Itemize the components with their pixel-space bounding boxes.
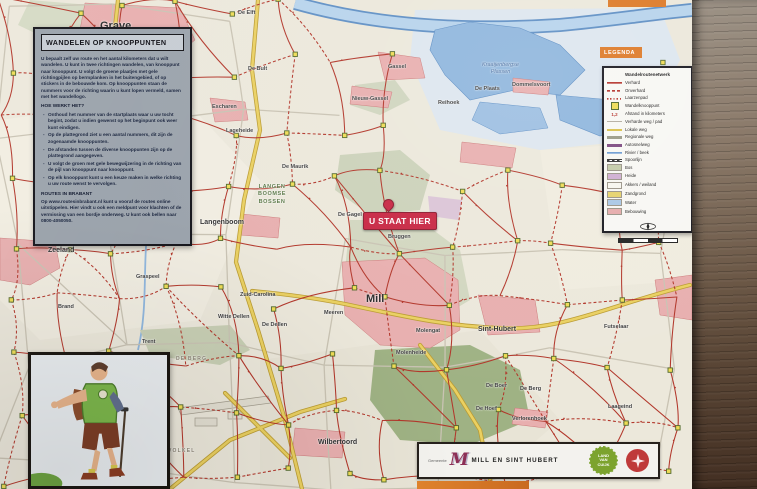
- legend-row: Autosnelweg: [607, 142, 688, 148]
- legend-row: Spoorlijn: [607, 158, 688, 163]
- legend-label: Water: [625, 201, 636, 206]
- map-board: GraveEscharenDe ElftDe BultGasselNieuw-G…: [0, 0, 692, 489]
- footer-logos-strip: Gemeente M MILL EN SINT HUBERT LAND VAN …: [417, 442, 660, 479]
- legend-row: Bebouwing: [607, 208, 688, 215]
- legend-label: Onverhard: [625, 89, 645, 94]
- board-top-tab: [608, 0, 666, 7]
- legend-row: Verhard: [607, 80, 688, 86]
- legend-row: Water: [607, 199, 688, 206]
- rosette-star-icon: [631, 454, 645, 468]
- info-how-title: HOE WERKT HET?: [41, 104, 184, 110]
- legend-label: Bebouwing: [625, 210, 646, 215]
- info-panel-title: WANDELEN OP KNOOPPUNTEN: [41, 34, 184, 51]
- info-how-item: Op de plattegrond ziet u een aantal numm…: [48, 132, 184, 145]
- rosette-logo: [626, 449, 649, 472]
- gemeente-name: MILL EN SINT HUBERT: [472, 457, 559, 464]
- info-routes-text: Op www.routesinbrabant.nl kunt u vooraf …: [41, 199, 184, 224]
- zand-swatch-icon: [607, 191, 622, 198]
- bos-swatch-icon: [607, 164, 622, 171]
- legend-panel: Wandelroutenetwerk VerhardOnverhardLaarz…: [602, 66, 693, 233]
- info-panel: WANDELEN OP KNOOPPUNTEN U bepaalt zelf u…: [33, 27, 192, 246]
- legend-row: Onverhard: [607, 88, 688, 94]
- legend-label: Zandgrond: [625, 192, 646, 197]
- legend-row: 1,2Afstand in kilometers: [607, 111, 688, 117]
- you-are-here-marker: U STAAT HIER: [363, 212, 437, 230]
- hiker-icon: [31, 355, 167, 486]
- info-intro: U bepaalt zelf uw route en het aantal ki…: [41, 56, 184, 100]
- legend-row: Laarzenpad: [607, 96, 688, 102]
- river-swatch-icon: [607, 150, 622, 156]
- gemeente-logo: Gemeente M MILL EN SINT HUBERT: [428, 454, 558, 468]
- info-how-item: De afstanden tussen de diverse knooppunt…: [48, 147, 184, 160]
- legend-label: Regionale weg: [625, 135, 653, 140]
- land-van-cuijk-badge: LAND VAN CUIJK: [590, 447, 617, 474]
- motorway-swatch-icon: [607, 142, 622, 148]
- legend-row: Zandgrond: [607, 191, 688, 198]
- legend-items: VerhardOnverhardLaarzenpadWandelknooppun…: [607, 80, 688, 215]
- legend-label: Bos: [625, 166, 632, 171]
- legend-row: Akkers / weiland: [607, 182, 688, 189]
- legend-row: Bos: [607, 164, 688, 171]
- legend-label: Autosnelweg: [625, 143, 650, 148]
- legend-label: Verhard: [625, 81, 640, 86]
- gemeente-monogram: M: [450, 454, 469, 468]
- legend-row: Rivier / beek: [607, 150, 688, 156]
- legend-label: Akkers / weiland: [625, 183, 656, 188]
- wooden-post: [692, 0, 757, 489]
- info-how-item: Onthoud het nummer van de startplaats wa…: [48, 112, 184, 131]
- grey-swatch-icon: [607, 119, 622, 125]
- rail-swatch-icon: [607, 159, 622, 162]
- water-swatch-icon: [607, 199, 622, 206]
- red-dot-swatch-icon: [607, 96, 622, 102]
- legend-label: Afstand in kilometers: [625, 112, 665, 117]
- legend-row: Verharde weg / pad: [607, 119, 688, 125]
- legend-label: Verharde weg / pad: [625, 120, 662, 125]
- map-sign-photo: GraveEscharenDe ElftDe BultGasselNieuw-G…: [0, 0, 757, 489]
- legend-row: Heide: [607, 173, 688, 180]
- legend-row: Regionale weg: [607, 135, 688, 141]
- regional-swatch-icon: [607, 135, 622, 141]
- dist-swatch-icon: 1,2: [607, 111, 622, 117]
- knoop-swatch-icon: [607, 103, 622, 109]
- legend-label: Rivier / beek: [625, 151, 649, 156]
- akkers-swatch-icon: [607, 182, 622, 189]
- info-routes-title: ROUTES IN BRABANT: [41, 192, 184, 198]
- legend-tab: LEGENDA: [600, 47, 642, 58]
- legend-header: Wandelroutenetwerk: [607, 72, 688, 77]
- legend-label: Lokale weg: [625, 128, 647, 133]
- gemeente-prefix: Gemeente: [428, 458, 447, 463]
- red-swatch-icon: [607, 80, 622, 86]
- bebouwing-swatch-icon: [607, 208, 622, 215]
- board-bottom-strip: [417, 481, 529, 489]
- info-how-item: Op elk knooppunt kunt u een keuze maken …: [48, 175, 184, 188]
- legend-label: Heide: [625, 174, 636, 179]
- heide-swatch-icon: [607, 173, 622, 180]
- legend-label: Laarzenpad: [625, 96, 648, 101]
- hiker-illustration-box: [28, 352, 170, 489]
- legend-footer: [607, 218, 688, 243]
- legend-label: Spoorlijn: [625, 158, 642, 163]
- red-dash-swatch-icon: [607, 88, 622, 94]
- legend-row: Lokale weg: [607, 127, 688, 133]
- info-how-item: U volgt de groen met gele bewegwijzering…: [48, 161, 184, 174]
- legend-row: Wandelknooppunt: [607, 103, 688, 109]
- compass-icon: [639, 222, 657, 231]
- legend-label: Wandelknooppunt: [625, 104, 659, 109]
- scale-bar: [618, 238, 678, 243]
- info-how-list: Onthoud het nummer van de startplaats wa…: [41, 112, 184, 188]
- local-swatch-icon: [607, 127, 622, 133]
